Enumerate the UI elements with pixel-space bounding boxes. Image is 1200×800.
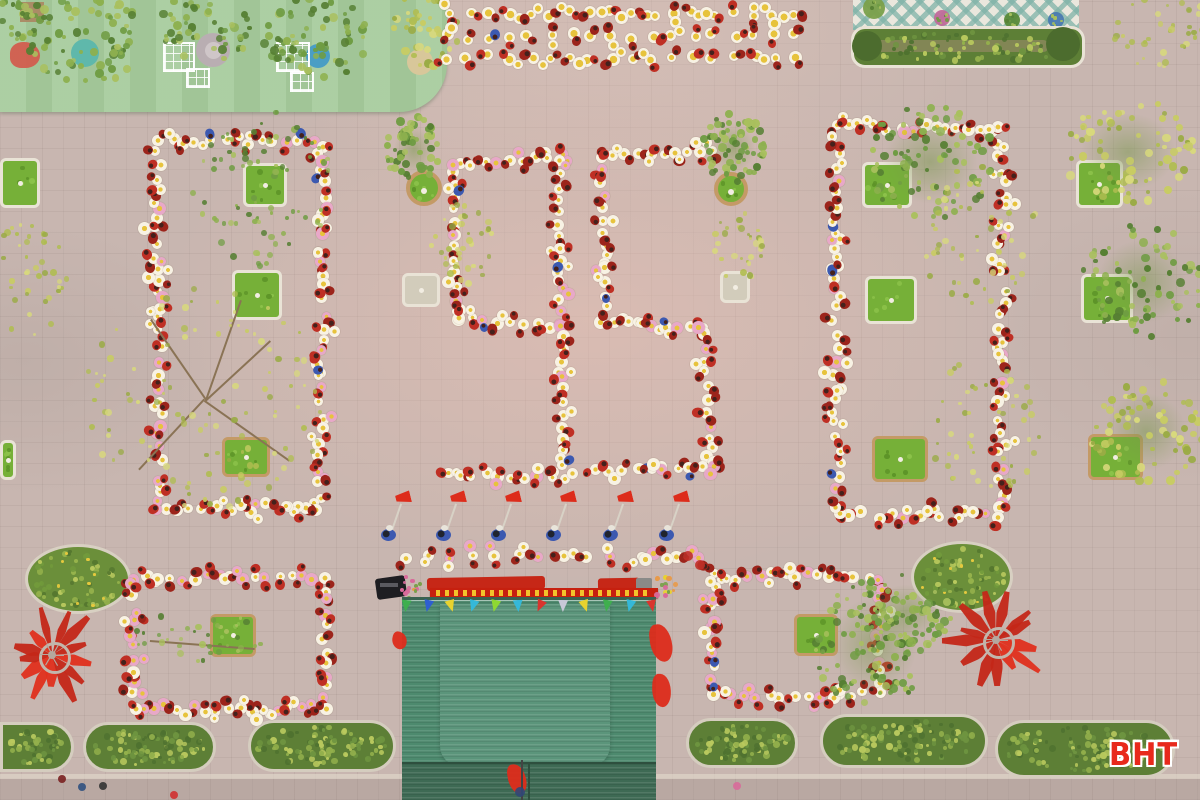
tree-foliage <box>107 355 113 361</box>
tree-foliage <box>195 624 202 631</box>
tree-foliage <box>998 219 1003 224</box>
playground-tree-foliage <box>341 38 349 46</box>
tree-foliage <box>902 154 907 159</box>
playground-tree-foliage <box>359 50 367 58</box>
shrub-leaf <box>107 597 111 601</box>
tree-foliage <box>1162 134 1170 142</box>
tree-foliage <box>888 186 895 193</box>
bouquet <box>673 582 678 587</box>
tree-foliage <box>961 159 967 165</box>
hedge-leaf <box>1049 745 1056 752</box>
tree-foliage <box>207 501 213 507</box>
tree-foliage <box>1024 468 1030 474</box>
playground-tree-foliage <box>40 64 48 72</box>
hedge-leaf <box>1017 751 1022 756</box>
tree-foliage <box>158 613 164 619</box>
tree-foliage <box>433 234 438 239</box>
patio-hedge-leaf <box>898 51 903 56</box>
tree-foliage <box>273 134 279 140</box>
tree-foliage <box>189 412 196 419</box>
flag-bearer-cap <box>608 525 615 531</box>
student <box>242 582 250 590</box>
red-flag <box>617 490 635 507</box>
tree-foliage <box>1115 20 1121 26</box>
tree-foliage <box>1132 316 1138 322</box>
hedge-leaf <box>913 728 917 732</box>
tree-foliage <box>288 455 294 461</box>
hedge-leaf <box>124 742 127 745</box>
planter-grass <box>886 450 889 453</box>
hedge-leaf <box>852 732 857 737</box>
flower-prop <box>607 215 619 227</box>
tree-foliage <box>743 211 747 215</box>
patio-hedge-leaf <box>992 45 999 52</box>
playground-tree-foliage <box>185 29 192 36</box>
tree-foliage <box>945 463 951 469</box>
tree-foliage <box>304 136 308 140</box>
flower-prop <box>562 288 574 300</box>
flower-prop <box>650 11 660 21</box>
student <box>649 62 661 73</box>
tree-foliage <box>237 324 240 327</box>
tree-foliage <box>457 256 462 261</box>
tree-foliage <box>951 476 955 480</box>
ground-object <box>695 560 705 570</box>
ground-object <box>170 791 178 799</box>
tree-foliage <box>1086 128 1095 137</box>
playground-tree-foliage <box>276 8 285 17</box>
shrub-leaf <box>46 584 52 590</box>
tree-foliage <box>1190 431 1196 437</box>
playground-tree-foliage <box>115 0 124 9</box>
tree-foliage <box>1107 127 1111 131</box>
tree-foliage <box>827 607 835 615</box>
student <box>519 14 530 26</box>
patio-hedge-leaf <box>962 41 965 44</box>
planter-grass <box>20 166 24 170</box>
playground-tree-foliage <box>406 11 410 15</box>
tree-foliage <box>1096 286 1101 291</box>
planter-grass <box>417 196 422 201</box>
hedge-leaf <box>1011 737 1016 742</box>
tree-foliage <box>207 644 212 649</box>
student <box>730 582 739 592</box>
tree-foliage <box>1175 317 1180 322</box>
playground-tree-foliage <box>20 11 25 16</box>
tree-foliage <box>748 254 754 260</box>
hedge-leaf <box>1069 753 1073 757</box>
playground-tree-foliage <box>109 19 116 26</box>
tree-foliage <box>1168 26 1175 33</box>
student <box>274 579 285 591</box>
red-flag <box>505 490 523 507</box>
flower-prop <box>313 247 324 258</box>
hedge-leaf <box>306 745 312 751</box>
tree-foliage <box>301 357 307 363</box>
student <box>459 287 467 296</box>
tree-foliage <box>731 253 738 260</box>
hedge-leaf <box>194 748 198 752</box>
playground-tree-foliage <box>265 32 273 40</box>
tree-foliage <box>851 585 855 589</box>
student <box>997 154 1008 164</box>
tree-foliage <box>485 219 492 226</box>
hedge-leaf <box>861 735 864 738</box>
hedge-leaf <box>1082 725 1087 730</box>
flower-prop <box>567 468 579 480</box>
tree-foliage <box>187 492 191 496</box>
tree-foliage <box>744 120 749 125</box>
shrub-leaf <box>933 568 936 571</box>
bouquet <box>663 585 668 590</box>
tree-foliage <box>268 371 271 374</box>
climbing-frame <box>186 68 210 88</box>
tree-foliage <box>163 463 170 470</box>
flower-prop <box>239 695 249 705</box>
flower-prop <box>139 654 149 664</box>
fan-hub <box>992 636 1000 644</box>
hedge-leaf <box>374 748 379 753</box>
tree-foliage <box>285 168 289 172</box>
flower-prop <box>538 60 547 69</box>
tree-foliage <box>885 588 891 594</box>
tree-foliage <box>57 245 61 249</box>
playground-tree-foliage <box>119 51 123 55</box>
planter-stone <box>889 298 894 303</box>
shrub-flower <box>86 558 89 561</box>
tree-foliage <box>871 166 878 173</box>
hedge-leaf <box>124 751 128 755</box>
hedge-leaf <box>954 738 959 743</box>
tree-foliage <box>1103 464 1110 471</box>
tree-foliage <box>142 641 147 646</box>
hedge-leaf <box>1036 760 1042 766</box>
tree-foliage <box>270 211 273 214</box>
tree-foliage <box>710 133 717 140</box>
tree-foliage <box>206 471 211 476</box>
tree-foliage <box>969 433 975 439</box>
tree-foliage <box>216 331 221 336</box>
tree-foliage <box>1182 264 1189 271</box>
planter-stone <box>728 189 734 195</box>
tree-foliage <box>479 265 483 269</box>
tree-foliage <box>927 196 931 200</box>
playground-tree-foliage <box>310 6 317 13</box>
tree-foliage <box>951 246 955 250</box>
tree-foliage <box>294 125 300 131</box>
tree-foliage <box>761 141 766 146</box>
flower-prop <box>661 553 673 565</box>
tree-foliage <box>1126 406 1131 411</box>
playground-tree-foliage <box>290 34 295 39</box>
tree-foliage <box>923 640 932 649</box>
hedge-leaf <box>893 747 898 752</box>
hedge-leaf <box>188 731 195 738</box>
hedge-leaf <box>1072 749 1075 752</box>
tree-foliage <box>297 210 300 213</box>
flower-prop <box>533 3 544 14</box>
shrub-leaf <box>42 587 47 592</box>
tree-foliage <box>1155 101 1161 107</box>
hedge-leaf <box>344 753 348 757</box>
tree-foliage <box>1196 303 1200 308</box>
tree-foliage <box>1008 483 1013 488</box>
tree-foliage <box>988 225 995 232</box>
patio-pot-leaf <box>1009 20 1011 22</box>
tree-foliage <box>406 174 411 179</box>
flag-bearer-cap <box>496 525 503 531</box>
tree-foliage <box>1116 418 1121 423</box>
tree-foliage <box>454 202 460 208</box>
hedge-leaf <box>1095 765 1100 770</box>
tree-foliage <box>236 206 240 210</box>
tree-foliage <box>24 239 30 245</box>
tree-foliage <box>289 384 293 388</box>
tree-foliage <box>1145 298 1150 303</box>
tree-foliage <box>973 386 978 391</box>
student <box>130 583 142 594</box>
hedge-leaf <box>164 745 170 751</box>
tree-foliage <box>988 298 994 304</box>
hedge-leaf <box>1069 737 1072 740</box>
tree-foliage <box>1103 280 1109 286</box>
tree-foliage <box>719 257 723 261</box>
bouquet <box>672 589 675 592</box>
playground-tree-foliage <box>124 24 128 28</box>
tree-foliage <box>747 272 753 278</box>
flower-prop <box>784 562 796 574</box>
tree-foliage <box>100 379 104 383</box>
tree-foliage <box>989 215 994 220</box>
tree-foliage <box>1175 173 1183 181</box>
hedge-leaf <box>132 750 135 753</box>
tree-foliage <box>230 137 235 142</box>
planter-grass <box>885 469 890 474</box>
flower-prop <box>439 0 450 10</box>
flower-prop <box>253 514 263 524</box>
tree-foliage <box>1176 435 1184 443</box>
tree-foliage <box>9 278 15 284</box>
flower-prop <box>593 272 603 282</box>
tree-foliage <box>161 307 164 310</box>
tree-foliage <box>1024 384 1030 390</box>
hedge-leaf <box>861 724 867 730</box>
tree-foliage <box>486 227 490 231</box>
hedge-leaf <box>755 726 758 729</box>
student <box>323 492 332 500</box>
shrub-leaf <box>34 582 40 588</box>
playground-tree-foliage <box>9 25 14 30</box>
tree-foliage <box>722 230 729 237</box>
tree-foliage <box>407 120 414 127</box>
tree-foliage <box>880 197 885 202</box>
tree-foliage <box>253 332 256 335</box>
red-flag <box>560 490 578 507</box>
playground-tree-foliage <box>278 38 283 43</box>
tree-foliage <box>216 300 219 303</box>
flag-bearer-cap <box>386 525 393 531</box>
tree-foliage <box>942 588 947 593</box>
flower-prop <box>749 2 760 13</box>
tree-foliage <box>204 453 208 457</box>
tree-foliage <box>27 312 32 317</box>
hedge-leaf <box>905 725 911 731</box>
tree-foliage <box>107 428 111 432</box>
tree-foliage <box>467 232 470 235</box>
hedge-leaf <box>964 749 968 753</box>
hedge-leaf <box>950 741 954 745</box>
planter-grass <box>220 635 224 639</box>
tree-foliage <box>911 161 918 168</box>
tree-foliage <box>901 122 906 127</box>
tree-foliage <box>1123 310 1129 316</box>
tree-foliage <box>956 362 962 368</box>
patio-pot-leaf <box>879 6 882 9</box>
tree-foliage <box>911 212 918 219</box>
tree-foliage <box>1155 11 1161 17</box>
student <box>989 520 1002 532</box>
tree-foliage <box>712 248 718 254</box>
hedge-leaf <box>158 756 161 759</box>
hedge-leaf <box>1015 740 1020 745</box>
flower-prop <box>615 11 628 24</box>
tree-foliage <box>944 185 950 191</box>
tree-foliage <box>244 480 251 487</box>
student <box>509 555 520 566</box>
tree-foliage <box>948 616 953 621</box>
playground-tree-foliage <box>83 28 89 34</box>
tree-foliage <box>1170 230 1177 237</box>
tree-foliage <box>858 579 865 586</box>
flower-prop <box>326 411 338 423</box>
flower-prop <box>466 305 475 314</box>
tree-foliage <box>875 635 881 641</box>
tree-foliage <box>725 110 733 118</box>
tree-foliage <box>1127 395 1132 400</box>
student <box>795 8 808 22</box>
flower-prop <box>573 57 586 70</box>
hedge-leaf <box>202 747 206 751</box>
hedge-leaf <box>1129 731 1133 735</box>
tree-foliage <box>1129 39 1135 45</box>
tree-foliage <box>89 424 95 430</box>
playground-tree-foliage <box>96 0 104 6</box>
hedge-leaf <box>149 752 155 758</box>
flower-prop <box>837 158 847 168</box>
tree-foliage <box>1191 30 1196 35</box>
tree-foliage <box>751 151 756 156</box>
tree-foliage <box>1145 149 1153 157</box>
flower-prop <box>902 505 911 514</box>
student <box>259 580 273 594</box>
hedge-leaf <box>31 734 36 739</box>
playground-tree-foliage <box>229 22 235 28</box>
tree-foliage <box>439 250 444 255</box>
tree-foliage <box>398 168 405 175</box>
student <box>233 710 243 719</box>
tree-foliage <box>1186 318 1191 323</box>
flower-prop <box>119 616 130 627</box>
student <box>571 35 583 47</box>
playground-tree-foliage <box>320 24 326 30</box>
tree-foliage <box>726 120 732 126</box>
tree-foliage <box>886 606 893 613</box>
tree-foliage <box>15 232 19 236</box>
tree-foliage <box>157 633 161 637</box>
flag-bearer-cap <box>551 525 558 531</box>
hedge <box>0 722 74 772</box>
hedge-leaf <box>110 737 114 741</box>
tree-foliage <box>732 140 739 147</box>
flower-prop <box>566 367 577 378</box>
aerial-photo-schoolyard: BHT <box>0 0 1200 800</box>
planter-stone <box>898 457 903 462</box>
tree-foliage <box>417 115 423 121</box>
hedge-leaf <box>329 735 333 739</box>
tree-foliage <box>1144 196 1152 204</box>
hedge-leaf <box>29 747 34 752</box>
tree-foliage <box>935 609 939 613</box>
patio-hedge-leaf <box>932 32 936 36</box>
planter-stone <box>419 288 424 293</box>
tree-foliage <box>911 133 919 141</box>
playground-tree-foliage <box>240 45 246 51</box>
tree-foliage <box>262 386 268 392</box>
hedge-leaf <box>732 758 735 761</box>
hedge-leaf <box>951 730 956 735</box>
bunting-string <box>406 600 652 601</box>
planter-grass <box>7 448 11 452</box>
flower-prop <box>564 262 573 271</box>
tree-foliage <box>1156 131 1160 135</box>
tree-foliage <box>1115 110 1122 117</box>
patio-hedge-leaf <box>1002 37 1007 42</box>
hedge-leaf <box>886 730 891 735</box>
bouquet <box>403 581 406 584</box>
tree-foliage <box>489 231 494 236</box>
tree-foliage <box>1125 44 1130 49</box>
tree-foliage <box>229 165 235 171</box>
tree-foliage <box>1105 297 1113 305</box>
tree-foliage <box>967 206 971 210</box>
tree-foliage <box>443 218 446 221</box>
tree-foliage <box>232 291 238 297</box>
tree-foliage <box>465 280 472 287</box>
tree-foliage <box>231 152 237 158</box>
tree-foliage <box>275 477 279 481</box>
playground-tree-foliage <box>183 14 190 21</box>
tree-foliage <box>200 211 206 217</box>
shrub-leaf <box>950 559 955 564</box>
tree-foliage <box>1097 147 1103 153</box>
tree-foliage <box>170 477 176 483</box>
tree-foliage <box>325 157 329 161</box>
tree-foliage <box>1030 213 1036 219</box>
tree-foliage <box>957 281 961 285</box>
shrub-flower <box>976 601 979 604</box>
tree-foliage <box>315 439 319 443</box>
tree-foliage <box>712 231 719 238</box>
hedge-leaf <box>847 748 852 753</box>
hedge-leaf <box>898 753 901 756</box>
tree-foliage <box>298 331 301 334</box>
flower-prop <box>986 253 997 264</box>
tree-foliage <box>756 229 760 233</box>
tree-foliage <box>967 411 971 415</box>
tree-foliage <box>190 190 196 196</box>
ground-object <box>99 782 107 790</box>
tree-foliage <box>261 230 267 236</box>
